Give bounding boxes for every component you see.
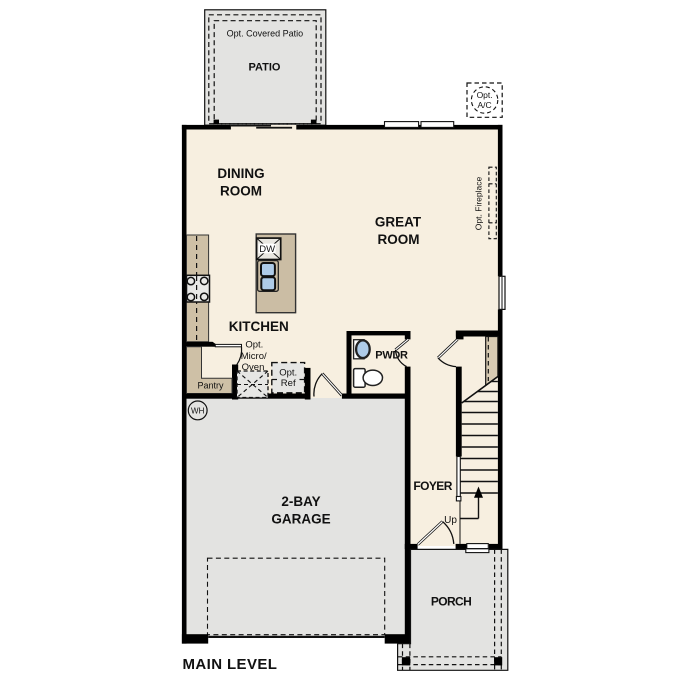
svg-text:Oven: Oven [242,362,265,373]
svg-text:2-BAY: 2-BAY [281,494,320,509]
svg-text:Pantry: Pantry [197,380,224,390]
svg-text:Ref: Ref [281,378,296,389]
svg-text:Opt.: Opt. [477,90,493,100]
svg-text:FOYER: FOYER [413,479,452,493]
svg-text:Micro/: Micro/ [241,351,267,362]
svg-text:PWDR: PWDR [375,350,408,362]
svg-text:Opt.: Opt. [279,367,297,378]
svg-text:ROOM: ROOM [378,232,420,247]
svg-text:DW: DW [259,244,275,255]
svg-text:Opt. Covered Patio: Opt. Covered Patio [227,29,304,39]
svg-text:GARAGE: GARAGE [271,512,330,527]
svg-text:KITCHEN: KITCHEN [229,319,289,334]
svg-text:ROOM: ROOM [220,184,262,199]
svg-text:PORCH: PORCH [431,595,471,609]
svg-text:DINING: DINING [217,166,264,181]
svg-text:GREAT: GREAT [375,215,422,230]
svg-text:MAIN LEVEL: MAIN LEVEL [183,656,278,673]
svg-text:WH: WH [191,406,205,415]
svg-text:Opt. Fireplace: Opt. Fireplace [474,177,484,231]
svg-text:A/C: A/C [478,100,492,110]
svg-text:PATIO: PATIO [249,61,281,73]
svg-text:Opt.: Opt. [245,340,263,351]
